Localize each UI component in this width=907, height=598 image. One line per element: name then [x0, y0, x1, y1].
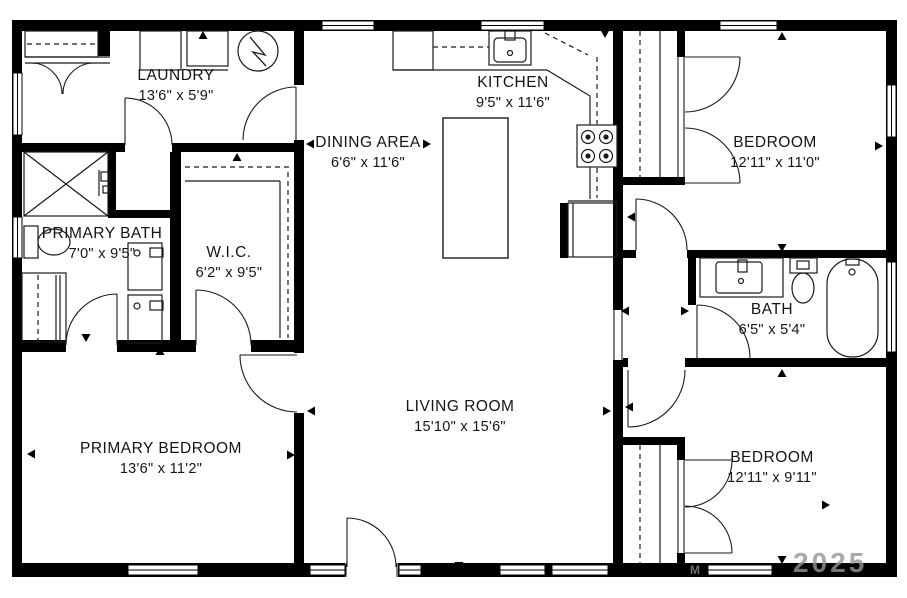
opening-primary-bath: [66, 340, 117, 352]
water-heater: [238, 31, 278, 71]
dim-arrow-up: [233, 153, 242, 161]
wall-hall-east: [688, 250, 696, 305]
wall-bedroom2-closet-top: [613, 437, 685, 445]
room-label-dining: DINING AREA 6'6" x 11'6": [288, 133, 448, 173]
room-label-bedroom-1: BEDROOM 12'11" x 11'0": [700, 133, 850, 173]
bedroom1-closet-shelving: [640, 31, 660, 177]
opening-primary-bedroom: [294, 353, 304, 413]
window-left-primary-bath: [13, 217, 22, 258]
dim-arrow-left: [625, 403, 633, 412]
wall-hall-west-mid: [613, 258, 623, 310]
room-name: KITCHEN: [443, 73, 583, 92]
window-bottom-primary-bedroom: [128, 565, 198, 575]
kitchen-island: [443, 118, 508, 258]
opening-bath2: [688, 305, 696, 358]
room-dims: 7'0" x 9'5": [22, 245, 182, 264]
kitchen-counter: [393, 31, 617, 201]
opening-mech-closet: [125, 143, 172, 152]
dim-arrow-right: [681, 307, 689, 316]
bath-vanity-sink: [700, 258, 783, 297]
room-name: DINING AREA: [288, 133, 448, 152]
window-right-bedroom1: [887, 85, 896, 137]
dim-arrow-right: [875, 142, 883, 151]
room-dims: 6'6" x 11'6": [288, 154, 448, 173]
wall-bedroom1-closet-jamb: [677, 31, 685, 57]
refrigerator: [568, 203, 617, 257]
room-dims: 9'5" x 11'6": [443, 94, 583, 113]
window-top-dining: [322, 21, 374, 30]
room-name: PRIMARY BEDROOM: [51, 439, 271, 458]
door-coat-closet-double: [31, 63, 94, 94]
room-dims: 13'6" x 11'2": [51, 460, 271, 479]
watermark-year: 2025: [793, 547, 867, 579]
vanity-sink-2: [128, 295, 163, 343]
room-dims: 13'6" x 5'9": [106, 87, 246, 106]
room-dims: 12'11" x 9'11": [692, 469, 852, 488]
room-name: BEDROOM: [692, 448, 852, 467]
kitchen-upper-cabinets: [433, 33, 597, 198]
dim-arrow-up: [778, 32, 787, 40]
window-bottom-living-3: [500, 565, 545, 575]
room-name: W.I.C.: [159, 243, 299, 262]
wall-bedroom2-north-stub-east: [685, 358, 696, 367]
window-bottom-living-2: [399, 565, 421, 575]
door-primary-bath: [66, 294, 117, 345]
door-wic: [196, 290, 251, 345]
wall-bedroom2-closet-jamb-bottom: [677, 553, 685, 565]
bath-toilet: [790, 258, 817, 303]
floor-plan: LAUNDRY 13'6" x 5'9" KITCHEN 9'5" x 11'6…: [0, 0, 907, 598]
room-name: PRIMARY BATH: [22, 224, 182, 243]
window-top-kitchen-sink: [481, 21, 544, 30]
dim-arrow-left: [627, 213, 635, 222]
dim-arrow-right: [822, 501, 830, 510]
bedroom2-closet-shelving: [640, 445, 660, 563]
shower: [24, 152, 108, 216]
wall-mech-closet-bottom: [108, 210, 181, 218]
room-dims: 12'11" x 11'0": [700, 154, 850, 173]
wall-hall-west-lower: [613, 360, 623, 563]
linen-closet: [22, 273, 66, 342]
dim-arrow-right: [287, 451, 295, 460]
wall-bedroom2-closet-jamb-top: [677, 445, 685, 460]
wall-bath2-south: [688, 358, 886, 367]
room-dims: 6'5" x 5'4": [702, 321, 842, 340]
opening-front-door: [345, 563, 398, 577]
dim-arrow-down: [778, 556, 787, 564]
dim-arrow-up: [778, 369, 787, 377]
room-label-laundry: LAUNDRY 13'6" x 5'9": [106, 66, 246, 106]
door-primary-bedroom: [240, 355, 297, 412]
room-label-living: LIVING ROOM 15'10" x 15'6": [375, 397, 545, 437]
window-right-bath-tub: [887, 262, 896, 352]
room-label-kitchen: KITCHEN 9'5" x 11'6": [443, 73, 583, 113]
coat-closet: [25, 31, 110, 63]
washer: [140, 31, 181, 70]
dim-arrow-left: [307, 407, 315, 416]
window-bottom-bedroom2: [708, 565, 772, 575]
window-bottom-living-1: [310, 565, 345, 575]
room-label-bath: BATH 6'5" x 5'4": [702, 300, 842, 340]
window-left-laundry: [13, 73, 22, 135]
wall-bedroom1-closet-bottom: [613, 177, 685, 185]
dryer: [187, 31, 228, 70]
room-name: LAUNDRY: [106, 66, 246, 85]
wall-pantry-stub: [560, 203, 568, 258]
room-label-primary-bedroom: PRIMARY BEDROOM 13'6" x 11'2": [51, 439, 271, 479]
stove: [577, 125, 617, 167]
room-label-bedroom-2: BEDROOM 12'11" x 9'11": [692, 448, 852, 488]
room-dims: 6'2" x 9'5": [159, 264, 299, 283]
opening-bedroom2: [628, 358, 685, 367]
door-bedroom1: [636, 199, 687, 250]
opening-wic: [196, 340, 251, 352]
wall-coat-closet-stub: [98, 30, 110, 56]
door-bedroom2: [628, 370, 685, 427]
dim-arrow-right: [603, 407, 611, 416]
room-name: BATH: [702, 300, 842, 319]
room-name: BEDROOM: [700, 133, 850, 152]
dim-arrow-left: [27, 450, 35, 459]
room-label-wic: W.I.C. 6'2" x 9'5": [159, 243, 299, 283]
window-top-bedroom1: [720, 21, 777, 30]
room-dims: 15'10" x 15'6": [375, 418, 545, 437]
room-label-primary-bath: PRIMARY BATH 7'0" x 9'5": [22, 224, 182, 264]
opening-bedroom1: [636, 250, 687, 258]
watermark-logo-mark: M: [690, 563, 700, 577]
dim-arrow-up: [199, 31, 208, 39]
window-bottom-living-4: [552, 565, 608, 575]
kitchen-sink: [489, 31, 531, 65]
room-name: LIVING ROOM: [375, 397, 545, 416]
dim-arrow-down: [601, 30, 610, 38]
